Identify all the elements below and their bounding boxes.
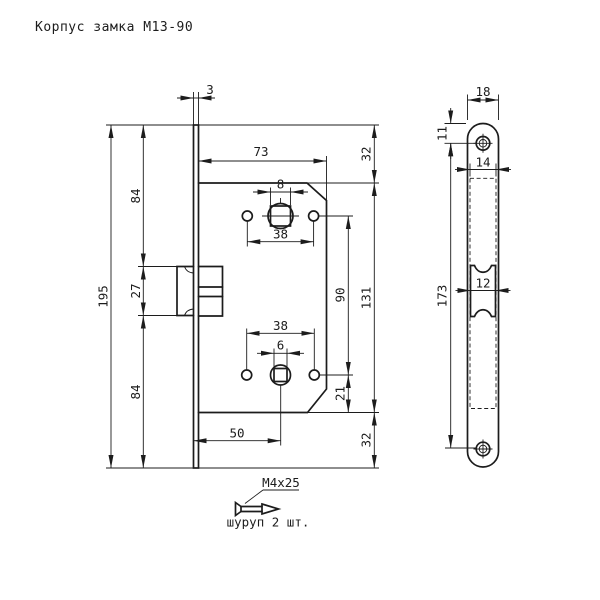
dim-body-width: 73 bbox=[253, 144, 268, 159]
screw-size-label: М4х25 bbox=[262, 475, 300, 490]
dim-latch-height: 27 bbox=[128, 283, 143, 298]
faceplate-front bbox=[468, 124, 499, 468]
latch-bevel-arc-top bbox=[185, 267, 194, 274]
upper-left-hole bbox=[242, 211, 252, 221]
latch-bolt-front bbox=[471, 266, 496, 317]
screw-annotation: М4х25 шуруп 2 шт. bbox=[227, 475, 310, 530]
dim-body-height: 131 bbox=[359, 287, 374, 310]
dim-lower-square-hole: 6 bbox=[277, 338, 285, 353]
dim-faceplate-thickness: 3 bbox=[206, 82, 214, 97]
dim-backset: 50 bbox=[229, 426, 244, 441]
dim-screw-hole-spacing: 173 bbox=[435, 285, 450, 308]
latch-block bbox=[199, 267, 223, 317]
lower-left-hole bbox=[242, 370, 252, 380]
drawing-sheet: Корпус замка М13-90 bbox=[0, 0, 600, 600]
leader-line bbox=[245, 490, 263, 504]
side-view: 18 11 14 12 173 bbox=[435, 84, 512, 467]
dim-screw-hole-offset: 11 bbox=[435, 126, 450, 141]
dim-hub-distance: 90 bbox=[333, 287, 348, 302]
dim-bottom-margin: 32 bbox=[359, 432, 374, 447]
hidden-cutout bbox=[470, 178, 496, 408]
side-view-extension-lines bbox=[445, 95, 499, 449]
dim-top-to-latch: 84 bbox=[128, 188, 143, 203]
dim-latch-to-bottom: 84 bbox=[128, 384, 143, 399]
dim-latch-width: 12 bbox=[475, 276, 490, 291]
dim-lower-hole-spacing: 38 bbox=[273, 318, 288, 333]
lower-square-hole bbox=[274, 369, 287, 382]
lock-body-outline bbox=[199, 183, 327, 413]
screw-quantity-caption: шуруп 2 шт. bbox=[227, 515, 310, 530]
dim-faceplate-width: 18 bbox=[475, 84, 490, 99]
side-view-dimension-lines bbox=[451, 100, 511, 448]
main-view-extension-lines bbox=[106, 92, 379, 468]
latch-bolt-head bbox=[177, 267, 194, 316]
dim-hub-to-bottom: 21 bbox=[333, 386, 348, 401]
dim-upper-hole-spacing: 38 bbox=[273, 227, 288, 242]
dim-upper-square-hole: 8 bbox=[277, 177, 285, 192]
upper-right-hole bbox=[309, 211, 319, 221]
technical-drawing: Корпус замка М13-90 bbox=[0, 0, 600, 600]
latch-bevel-arc-bottom bbox=[185, 309, 194, 316]
drawing-title: Корпус замка М13-90 bbox=[35, 20, 193, 35]
main-view: 3 73 8 38 38 6 50 195 84 27 84 32 131 32… bbox=[96, 82, 380, 468]
dim-top-margin: 32 bbox=[359, 146, 374, 161]
dim-faceplate-length: 195 bbox=[96, 285, 111, 308]
lower-right-hole bbox=[309, 370, 319, 380]
dim-cutout-width: 14 bbox=[475, 155, 490, 170]
screw-point bbox=[262, 504, 279, 514]
